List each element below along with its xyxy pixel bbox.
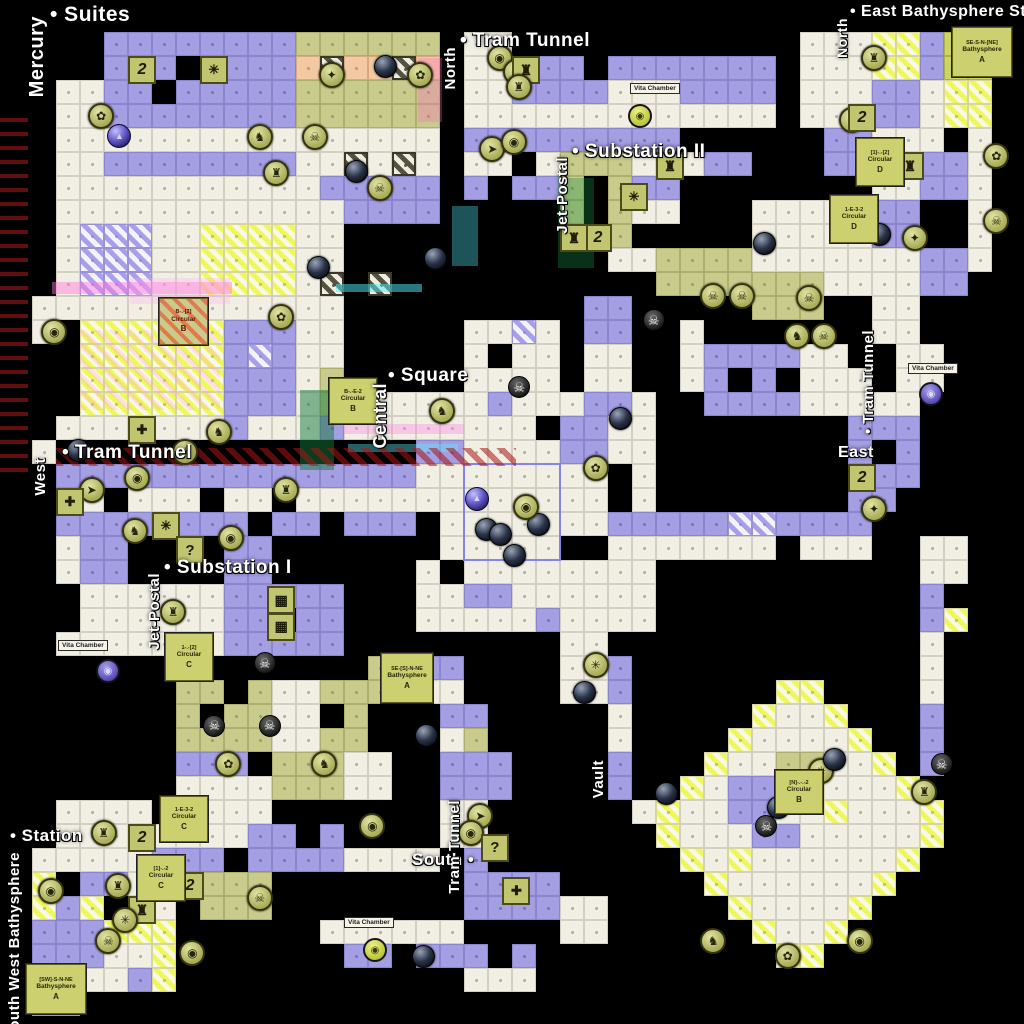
map-floor-tile bbox=[80, 80, 104, 104]
map-floor-tile bbox=[608, 368, 632, 392]
map-floor-tile bbox=[128, 368, 152, 392]
map-floor-tile bbox=[680, 536, 704, 560]
map-floor-tile bbox=[224, 32, 248, 56]
map-floor-tile bbox=[920, 680, 944, 704]
map-floor-tile bbox=[152, 224, 176, 248]
map-floor-tile bbox=[536, 872, 560, 896]
map-floor-tile bbox=[728, 344, 752, 368]
route-sign-line: 1-E-3-2 bbox=[161, 807, 207, 814]
area-label: East bbox=[838, 444, 874, 462]
map-floor-tile bbox=[560, 584, 584, 608]
area-label: Vault bbox=[590, 760, 607, 798]
map-floor-tile bbox=[776, 680, 800, 704]
map-floor-tile bbox=[608, 608, 632, 632]
map-floor-tile bbox=[944, 176, 968, 200]
map-floor-tile bbox=[56, 128, 80, 152]
map-hole-tile bbox=[224, 680, 248, 704]
map-floor-tile bbox=[896, 320, 920, 344]
map-floor-tile bbox=[440, 920, 464, 944]
map-floor-tile bbox=[128, 272, 152, 296]
map-hole-tile bbox=[248, 512, 272, 536]
map-floor-tile bbox=[824, 272, 848, 296]
map-floor-tile bbox=[728, 728, 752, 752]
map-floor-tile bbox=[224, 608, 248, 632]
map-floor-tile bbox=[608, 584, 632, 608]
map-floor-tile bbox=[272, 824, 296, 848]
map-floor-tile bbox=[560, 896, 584, 920]
map-floor-tile bbox=[776, 224, 800, 248]
map-floor-tile bbox=[896, 392, 920, 416]
map-floor-tile bbox=[272, 776, 296, 800]
map-floor-tile bbox=[944, 608, 968, 632]
route-sign-line: A bbox=[382, 681, 432, 691]
map-floor-tile bbox=[248, 800, 272, 824]
map-floor-tile bbox=[704, 872, 728, 896]
map-floor-tile bbox=[704, 512, 728, 536]
map-floor-tile bbox=[800, 536, 824, 560]
map-floor-tile bbox=[824, 80, 848, 104]
map-floor-tile bbox=[320, 584, 344, 608]
map-floor-tile bbox=[896, 440, 920, 464]
orb-icon bbox=[823, 748, 846, 771]
map-floor-tile bbox=[272, 512, 296, 536]
map-floor-tile bbox=[512, 944, 536, 968]
map-hole-tile bbox=[608, 488, 632, 512]
skull-icon: ☠ bbox=[254, 652, 276, 674]
map-floor-tile bbox=[584, 920, 608, 944]
map-floor-tile bbox=[800, 944, 824, 968]
map-floor-tile bbox=[464, 320, 488, 344]
map-floor-tile bbox=[80, 872, 104, 896]
map-floor-tile bbox=[728, 752, 752, 776]
map-floor-tile bbox=[632, 512, 656, 536]
map-floor-tile bbox=[176, 368, 200, 392]
route-sign: [1]-.-2CircularC bbox=[137, 855, 185, 901]
skull-icon: ☠ bbox=[259, 715, 281, 737]
map-floor-tile bbox=[656, 200, 680, 224]
map-floor-tile bbox=[824, 920, 848, 944]
map-floor-tile bbox=[320, 920, 344, 944]
map-floor-tile bbox=[368, 488, 392, 512]
map-floor-tile bbox=[176, 152, 200, 176]
route-sign-line: C bbox=[166, 660, 212, 670]
map-floor-tile bbox=[464, 608, 488, 632]
map-floor-tile bbox=[800, 704, 824, 728]
map-floor-tile bbox=[848, 848, 872, 872]
gear-tile-icon: ✳ bbox=[620, 183, 648, 211]
ammo-2-tile-icon: 2 bbox=[128, 56, 156, 84]
map-floor-tile bbox=[752, 536, 776, 560]
map-floor-tile bbox=[920, 272, 944, 296]
map-floor-tile bbox=[80, 392, 104, 416]
map-floor-tile bbox=[368, 104, 392, 128]
area-label: Mercury bbox=[26, 16, 49, 97]
map-floor-tile bbox=[440, 752, 464, 776]
map-floor-tile bbox=[944, 560, 968, 584]
map-floor-tile bbox=[392, 488, 416, 512]
map-floor-tile bbox=[296, 56, 320, 80]
map-floor-tile bbox=[224, 320, 248, 344]
map-floor-tile bbox=[632, 440, 656, 464]
map-floor-tile bbox=[896, 32, 920, 56]
map-floor-tile bbox=[368, 200, 392, 224]
route-sign-line: C bbox=[138, 881, 184, 891]
map-floor-tile bbox=[296, 152, 320, 176]
vending-tile-icon: ▦ bbox=[267, 613, 295, 641]
olive-badge-icon: ✳ bbox=[112, 907, 138, 933]
area-label: • Tram Tunnel bbox=[62, 442, 192, 464]
map-floor-tile bbox=[464, 560, 488, 584]
map-floor-tile bbox=[848, 728, 872, 752]
map-hole-tile bbox=[200, 488, 224, 512]
map-floor-tile bbox=[296, 176, 320, 200]
map-floor-tile bbox=[488, 392, 512, 416]
map-floor-tile bbox=[848, 80, 872, 104]
map-floor-tile bbox=[440, 944, 464, 968]
map-floor-tile bbox=[176, 248, 200, 272]
route-sign: B-.-[2]CircularB bbox=[159, 298, 208, 345]
map-floor-tile bbox=[152, 152, 176, 176]
map-floor-tile bbox=[512, 440, 536, 464]
map-floor-tile bbox=[320, 224, 344, 248]
map-floor-tile bbox=[56, 920, 80, 944]
map-floor-tile bbox=[464, 392, 488, 416]
map-floor-tile bbox=[824, 872, 848, 896]
map-floor-tile bbox=[608, 344, 632, 368]
map-floor-tile bbox=[872, 248, 896, 272]
map-floor-tile bbox=[176, 344, 200, 368]
map-floor-tile bbox=[560, 80, 584, 104]
map-floor-tile bbox=[128, 488, 152, 512]
map-floor-tile bbox=[56, 224, 80, 248]
route-sign-line: B-.-[2] bbox=[160, 309, 207, 316]
map-hole-tile bbox=[416, 512, 440, 536]
vita-chamber-icon: ◉ bbox=[363, 938, 387, 962]
olive-badge-icon: ☠ bbox=[796, 285, 822, 311]
map-floor-tile bbox=[512, 968, 536, 992]
map-floor-tile bbox=[560, 488, 584, 512]
map-floor-tile bbox=[56, 296, 80, 320]
map-floor-tile bbox=[344, 776, 368, 800]
health-plus-tile-icon: ✚ bbox=[128, 416, 156, 444]
map-floor-tile bbox=[416, 488, 440, 512]
map-floor-tile bbox=[296, 512, 320, 536]
map-floor-tile bbox=[680, 344, 704, 368]
map-floor-tile bbox=[32, 920, 56, 944]
map-floor-tile bbox=[464, 704, 488, 728]
map-floor-tile bbox=[608, 704, 632, 728]
map-floor-tile bbox=[200, 32, 224, 56]
map-floor-tile bbox=[656, 104, 680, 128]
map-floor-tile bbox=[464, 104, 488, 128]
map-floor-tile bbox=[632, 584, 656, 608]
map-floor-tile bbox=[104, 176, 128, 200]
map-floor-tile bbox=[824, 800, 848, 824]
question-tile-icon: ? bbox=[481, 834, 509, 862]
map-floor-tile bbox=[632, 608, 656, 632]
map-floor-tile bbox=[296, 224, 320, 248]
map-floor-tile bbox=[272, 680, 296, 704]
map-floor-tile bbox=[824, 536, 848, 560]
map-floor-tile bbox=[608, 440, 632, 464]
map-floor-tile bbox=[944, 104, 968, 128]
map-floor-tile bbox=[584, 296, 608, 320]
map-floor-tile bbox=[224, 872, 248, 896]
map-floor-tile bbox=[176, 104, 200, 128]
map-floor-tile bbox=[176, 176, 200, 200]
map-floor-tile bbox=[488, 608, 512, 632]
map-floor-tile bbox=[320, 776, 344, 800]
map-floor-tile bbox=[896, 824, 920, 848]
map-floor-tile bbox=[464, 56, 488, 80]
map-floor-tile bbox=[464, 416, 488, 440]
route-sign-line: A bbox=[953, 55, 1011, 65]
map-floor-tile bbox=[80, 224, 104, 248]
game-map-viewport[interactable]: ✿▲2✳♞☠✦✿♜☠✿◉♞✚◉✿♜♜➤◉♜♞2✦✿☠☠♞☠♜✳♜2♜☠☠☠☠♞▲… bbox=[0, 0, 1024, 1024]
map-floor-tile bbox=[872, 296, 896, 320]
area-label: • Substation II bbox=[572, 141, 705, 163]
map-floor-tile bbox=[272, 128, 296, 152]
map-floor-tile bbox=[896, 416, 920, 440]
map-hole-tile bbox=[536, 416, 560, 440]
map-floor-tile bbox=[800, 512, 824, 536]
map-floor-tile bbox=[704, 56, 728, 80]
map-floor-tile bbox=[296, 80, 320, 104]
route-sign-line: Circular bbox=[138, 872, 184, 880]
map-floor-tile bbox=[416, 608, 440, 632]
map-floor-tile bbox=[872, 872, 896, 896]
map-floor-tile bbox=[392, 128, 416, 152]
map-floor-tile bbox=[104, 56, 128, 80]
map-floor-tile bbox=[680, 248, 704, 272]
route-sign: [N]-.-.-2CircularB bbox=[775, 770, 823, 814]
map-floor-tile bbox=[224, 488, 248, 512]
map-floor-tile bbox=[296, 200, 320, 224]
map-floor-tile bbox=[128, 320, 152, 344]
map-floor-tile bbox=[80, 584, 104, 608]
map-floor-tile bbox=[80, 152, 104, 176]
map-floor-tile bbox=[152, 368, 176, 392]
map-floor-tile bbox=[104, 968, 128, 992]
map-floor-tile bbox=[296, 776, 320, 800]
map-floor-tile bbox=[224, 368, 248, 392]
map-floor-tile bbox=[224, 296, 248, 320]
map-floor-tile bbox=[560, 416, 584, 440]
map-floor-tile bbox=[272, 368, 296, 392]
olive-badge-icon: ♞ bbox=[247, 124, 273, 150]
map-floor-tile bbox=[584, 560, 608, 584]
map-floor-tile bbox=[80, 200, 104, 224]
map-floor-tile bbox=[896, 296, 920, 320]
olive-badge-icon: ◉ bbox=[41, 319, 67, 345]
map-floor-tile bbox=[800, 872, 824, 896]
map-floor-tile bbox=[560, 656, 584, 680]
olive-badge-icon: ◉ bbox=[179, 940, 205, 966]
map-floor-tile bbox=[248, 416, 272, 440]
map-floor-tile bbox=[752, 200, 776, 224]
map-floor-tile bbox=[368, 32, 392, 56]
map-floor-tile bbox=[848, 536, 872, 560]
map-floor-tile bbox=[800, 104, 824, 128]
map-floor-tile bbox=[248, 32, 272, 56]
map-floor-tile bbox=[296, 584, 320, 608]
map-floor-tile bbox=[920, 608, 944, 632]
map-floor-tile bbox=[560, 56, 584, 80]
map-floor-tile bbox=[680, 80, 704, 104]
skull-icon: ☠ bbox=[931, 753, 953, 775]
map-floor-tile bbox=[248, 200, 272, 224]
map-floor-tile bbox=[104, 584, 128, 608]
map-floor-tile bbox=[680, 320, 704, 344]
map-floor-tile bbox=[440, 704, 464, 728]
map-floor-tile bbox=[800, 392, 824, 416]
map-floor-tile bbox=[416, 920, 440, 944]
map-floor-tile bbox=[776, 872, 800, 896]
orb-icon bbox=[573, 681, 596, 704]
map-hole-tile bbox=[896, 488, 920, 512]
map-floor-tile bbox=[248, 56, 272, 80]
map-floor-tile bbox=[392, 152, 416, 176]
map-hole-tile bbox=[296, 824, 320, 848]
map-floor-tile bbox=[920, 128, 944, 152]
map-floor-tile bbox=[536, 560, 560, 584]
map-floor-tile bbox=[800, 848, 824, 872]
route-sign-line: C bbox=[161, 822, 207, 832]
map-floor-tile bbox=[608, 728, 632, 752]
map-floor-tile bbox=[392, 104, 416, 128]
map-floor-tile bbox=[104, 416, 128, 440]
map-floor-tile bbox=[704, 848, 728, 872]
map-floor-tile bbox=[584, 368, 608, 392]
map-floor-tile bbox=[608, 512, 632, 536]
route-sign-line: Bathysphere bbox=[953, 46, 1011, 54]
map-floor-tile bbox=[56, 152, 80, 176]
map-floor-tile bbox=[440, 512, 464, 536]
map-floor-tile bbox=[272, 392, 296, 416]
map-floor-tile bbox=[128, 32, 152, 56]
map-floor-tile bbox=[152, 176, 176, 200]
map-floor-tile bbox=[224, 584, 248, 608]
map-floor-tile bbox=[104, 296, 128, 320]
map-floor-tile bbox=[200, 152, 224, 176]
ammo-2-tile-icon: 2 bbox=[128, 824, 156, 852]
map-floor-tile bbox=[248, 368, 272, 392]
olive-badge-icon: ✿ bbox=[215, 751, 241, 777]
map-floor-tile bbox=[248, 320, 272, 344]
map-floor-tile bbox=[272, 344, 296, 368]
map-floor-tile bbox=[608, 656, 632, 680]
area-label: • Suites bbox=[50, 3, 130, 27]
map-floor-tile bbox=[488, 584, 512, 608]
route-sign-line: Circular bbox=[160, 316, 207, 324]
area-label: • East Bathysphere Station bbox=[850, 3, 1024, 21]
route-sign-line: Circular bbox=[166, 651, 212, 659]
map-floor-tile bbox=[368, 80, 392, 104]
map-floor-tile bbox=[104, 344, 128, 368]
map-floor-tile bbox=[128, 344, 152, 368]
map-floor-tile bbox=[80, 368, 104, 392]
map-floor-tile bbox=[632, 464, 656, 488]
route-sign-line: B bbox=[776, 795, 822, 805]
map-floor-tile bbox=[920, 560, 944, 584]
route-sign-line: 1-E-3-2 bbox=[831, 207, 877, 214]
map-floor-tile bbox=[488, 968, 512, 992]
map-floor-tile bbox=[560, 512, 584, 536]
map-floor-tile bbox=[296, 608, 320, 632]
route-sign-line: SE-[S]-N-NE bbox=[382, 666, 432, 673]
map-floor-tile bbox=[800, 728, 824, 752]
map-floor-tile bbox=[968, 176, 992, 200]
map-floor-tile bbox=[800, 56, 824, 80]
map-floor-tile bbox=[872, 800, 896, 824]
map-floor-tile bbox=[176, 200, 200, 224]
map-floor-tile bbox=[200, 584, 224, 608]
map-floor-tile bbox=[776, 248, 800, 272]
map-floor-tile bbox=[392, 176, 416, 200]
map-floor-tile bbox=[224, 704, 248, 728]
map-floor-tile bbox=[872, 272, 896, 296]
map-floor-tile bbox=[632, 560, 656, 584]
map-floor-tile bbox=[704, 248, 728, 272]
olive-badge-icon: ☠ bbox=[811, 323, 837, 349]
map-floor-tile bbox=[872, 848, 896, 872]
map-floor-tile bbox=[728, 872, 752, 896]
map-floor-tile bbox=[800, 680, 824, 704]
map-floor-tile bbox=[320, 488, 344, 512]
route-sign-line: [1]-.-2 bbox=[138, 866, 184, 873]
map-floor-tile bbox=[152, 488, 176, 512]
area-label: Jet-Postal bbox=[146, 573, 163, 650]
map-floor-tile bbox=[416, 584, 440, 608]
map-floor-tile bbox=[464, 440, 488, 464]
map-floor-tile bbox=[704, 80, 728, 104]
olive-badge-icon: ♜ bbox=[506, 74, 532, 100]
map-floor-tile bbox=[224, 728, 248, 752]
map-floor-tile bbox=[320, 680, 344, 704]
map-floor-tile bbox=[944, 272, 968, 296]
map-floor-tile bbox=[128, 128, 152, 152]
map-hole-tile bbox=[776, 368, 800, 392]
map-floor-tile bbox=[656, 272, 680, 296]
map-floor-tile bbox=[152, 200, 176, 224]
map-floor-tile bbox=[200, 224, 224, 248]
map-floor-tile bbox=[776, 728, 800, 752]
map-floor-tile bbox=[584, 608, 608, 632]
route-sign: [1]-.-[2]CircularD bbox=[856, 138, 904, 186]
map-floor-tile bbox=[320, 344, 344, 368]
map-floor-tile bbox=[920, 584, 944, 608]
map-floor-tile bbox=[152, 392, 176, 416]
map-floor-tile bbox=[392, 920, 416, 944]
map-hole-tile bbox=[608, 464, 632, 488]
map-floor-tile bbox=[200, 128, 224, 152]
map-floor-tile bbox=[296, 392, 320, 416]
route-sign: 1-E-3-2CircularC bbox=[160, 796, 208, 842]
map-floor-tile bbox=[224, 128, 248, 152]
map-floor-tile bbox=[368, 512, 392, 536]
map-floor-tile bbox=[440, 776, 464, 800]
map-floor-tile bbox=[200, 272, 224, 296]
map-floor-tile bbox=[584, 488, 608, 512]
map-floor-tile bbox=[296, 488, 320, 512]
area-label: West bbox=[32, 458, 49, 496]
map-hole-tile bbox=[728, 368, 752, 392]
map-hole-tile bbox=[320, 512, 344, 536]
map-floor-tile bbox=[368, 752, 392, 776]
map-floor-tile bbox=[824, 392, 848, 416]
olive-badge-icon: ☠ bbox=[700, 283, 726, 309]
map-hole-tile bbox=[584, 200, 608, 224]
